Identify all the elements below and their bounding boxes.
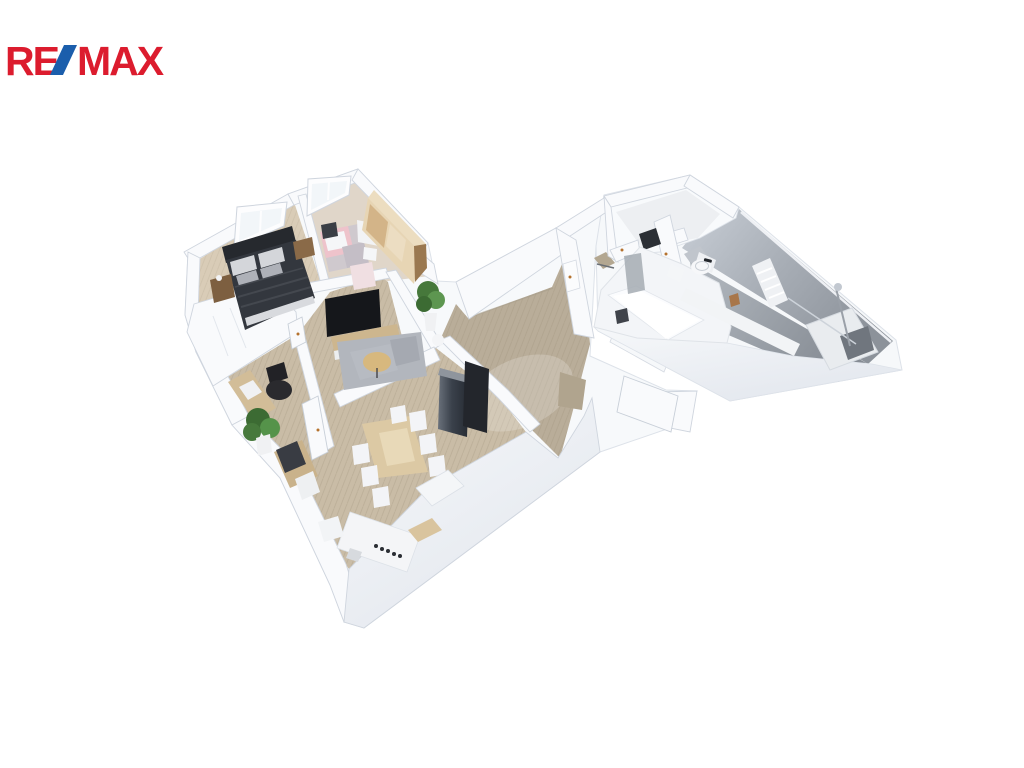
svg-text:RE: RE	[5, 38, 59, 84]
svg-text:MAX: MAX	[77, 38, 164, 84]
